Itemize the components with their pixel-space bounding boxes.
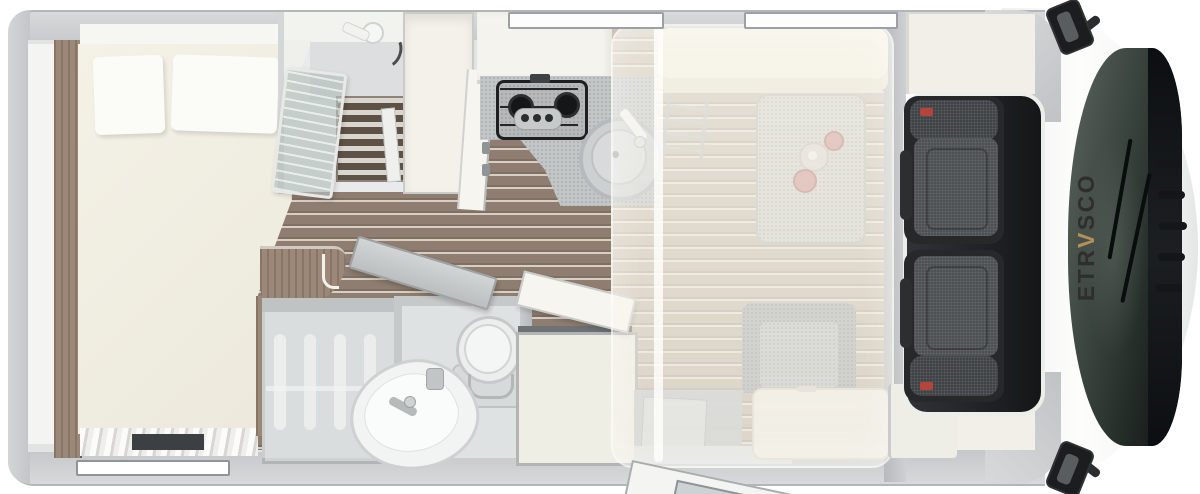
driver-seat-backrest bbox=[910, 356, 998, 396]
passenger-seat-backrest bbox=[910, 100, 998, 140]
hob-grate-line bbox=[500, 88, 578, 90]
soap-dispenser bbox=[426, 368, 444, 390]
grille-slat bbox=[1156, 284, 1182, 292]
bed-foot-slot bbox=[132, 434, 204, 450]
grille-slat bbox=[1159, 222, 1187, 230]
passenger-armrest bbox=[900, 150, 912, 220]
driver-seat-seam bbox=[926, 266, 988, 350]
grille-slat bbox=[1156, 160, 1182, 168]
passenger-seat-seam bbox=[926, 148, 988, 230]
dropdown-bed-rail bbox=[654, 26, 663, 462]
hob-knob bbox=[521, 114, 529, 122]
brand-part: ETR bbox=[1073, 248, 1099, 301]
coat-hook bbox=[322, 254, 339, 289]
brand-logo: ETRVSCO bbox=[1073, 167, 1099, 307]
toilet-grip bbox=[468, 374, 514, 399]
roof-window bbox=[508, 12, 664, 29]
driver-armrest bbox=[900, 278, 912, 348]
brand-part: SCO bbox=[1073, 173, 1099, 230]
roof-window bbox=[744, 12, 898, 29]
hob-igniter bbox=[530, 74, 550, 83]
wardrobe-top-band bbox=[262, 298, 398, 312]
toilet-seat bbox=[464, 324, 512, 374]
driver-seatbelt-tag bbox=[920, 382, 933, 390]
hob-knob bbox=[545, 114, 553, 122]
a-pillar-band bbox=[1148, 48, 1182, 446]
wall-left bbox=[8, 10, 30, 484]
bathroom-faucet-knob bbox=[404, 396, 416, 408]
pillow bbox=[93, 55, 166, 135]
grille-slat bbox=[1158, 253, 1185, 261]
overcab-shelf bbox=[906, 14, 1035, 94]
motorhome-floorplan: ETRVSCO bbox=[0, 0, 1200, 494]
grille-slat bbox=[1158, 191, 1185, 199]
cabinet-hinge bbox=[482, 142, 490, 154]
pillow bbox=[171, 54, 280, 134]
passenger-seatbelt-tag bbox=[920, 108, 933, 116]
wardrobe-strip bbox=[54, 40, 82, 458]
lower-window bbox=[76, 460, 230, 476]
cabinet-hinge bbox=[482, 164, 490, 176]
brand-part-gold-v: V bbox=[1073, 230, 1099, 248]
hob-knob bbox=[533, 114, 541, 122]
